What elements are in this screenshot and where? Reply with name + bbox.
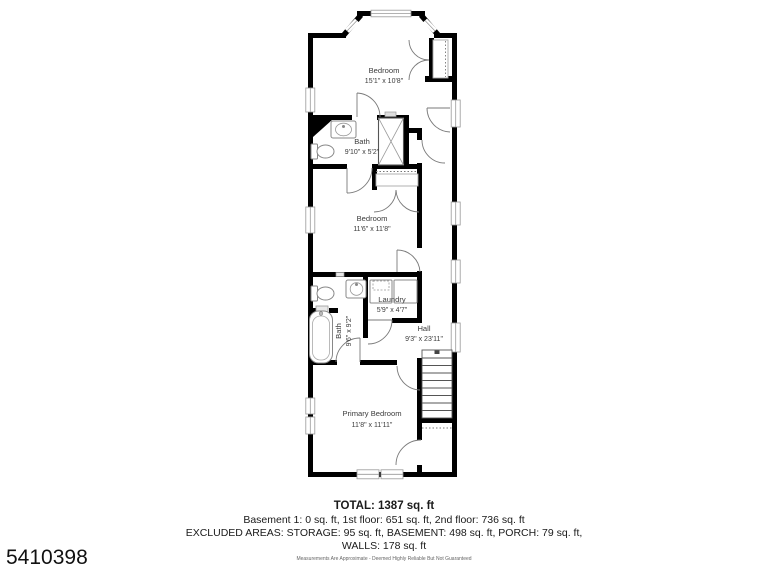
svg-text:9'3" x 23'11": 9'3" x 23'11" [405, 336, 443, 343]
room-label-laundry: Laundry 5'9" x 4'7" [377, 295, 408, 314]
closet-rod [433, 40, 448, 78]
room-label-bath-lower: Bath 9'6" x 9'2" [334, 315, 353, 346]
svg-text:Laundry: Laundry [378, 295, 406, 304]
room-label-hall: Hall 9'3" x 23'11" [405, 324, 443, 343]
floor-plan-page: Bedroom 15'1" x 10'8" Bath 9'10" x 5'2" … [0, 0, 768, 576]
svg-text:Bath: Bath [354, 137, 370, 146]
svg-text:9'10" x 5'2": 9'10" x 5'2" [345, 149, 380, 156]
sink-icon [331, 121, 356, 138]
sink-icon [346, 280, 366, 298]
room-label-primary-bedroom: Primary Bedroom 11'8" x 11'11" [342, 409, 401, 429]
floor-plan: Bedroom 15'1" x 10'8" Bath 9'10" x 5'2" … [0, 0, 768, 576]
excluded-areas-line: EXCLUDED AREAS: STORAGE: 95 sq. ft, BASE… [0, 527, 768, 539]
towel-bar [336, 273, 344, 277]
svg-text:15'1" x 10'8": 15'1" x 10'8" [365, 78, 404, 85]
closet-shelf [376, 172, 418, 187]
floor-areas-line: Basement 1: 0 sq. ft, 1st floor: 651 sq.… [0, 514, 768, 526]
stairs-direction-marker [435, 351, 440, 355]
total-area-line: TOTAL: 1387 sq. ft [0, 500, 768, 512]
svg-text:5'9" x 4'7": 5'9" x 4'7" [377, 307, 408, 314]
toilet-icon [311, 144, 334, 159]
shower-icon [379, 112, 404, 165]
bathtub-icon [310, 306, 333, 363]
svg-text:9'6" x 9'2": 9'6" x 9'2" [346, 315, 353, 346]
svg-text:Hall: Hall [417, 324, 430, 333]
fixtures [310, 40, 449, 363]
listing-id: 5410398 [6, 546, 88, 570]
svg-text:11'6" x 11'8": 11'6" x 11'8" [353, 226, 391, 233]
room-label-bedroom-middle: Bedroom 11'6" x 11'8" [353, 214, 391, 233]
walls-area-line: WALLS: 178 sq. ft [0, 540, 768, 552]
stairs [422, 350, 452, 428]
svg-text:Primary Bedroom: Primary Bedroom [342, 409, 401, 418]
svg-text:Bedroom: Bedroom [369, 66, 400, 75]
disclaimer-text: Measurements Are Approximate - Deemed Hi… [0, 556, 768, 562]
svg-text:Bath: Bath [334, 323, 343, 339]
toilet-icon [311, 286, 334, 301]
room-label-bath-top: Bath 9'10" x 5'2" [345, 137, 380, 156]
svg-text:11'8" x 11'11": 11'8" x 11'11" [352, 422, 393, 429]
svg-text:Bedroom: Bedroom [357, 214, 388, 223]
room-label-bedroom-top: Bedroom 15'1" x 10'8" [365, 66, 404, 85]
